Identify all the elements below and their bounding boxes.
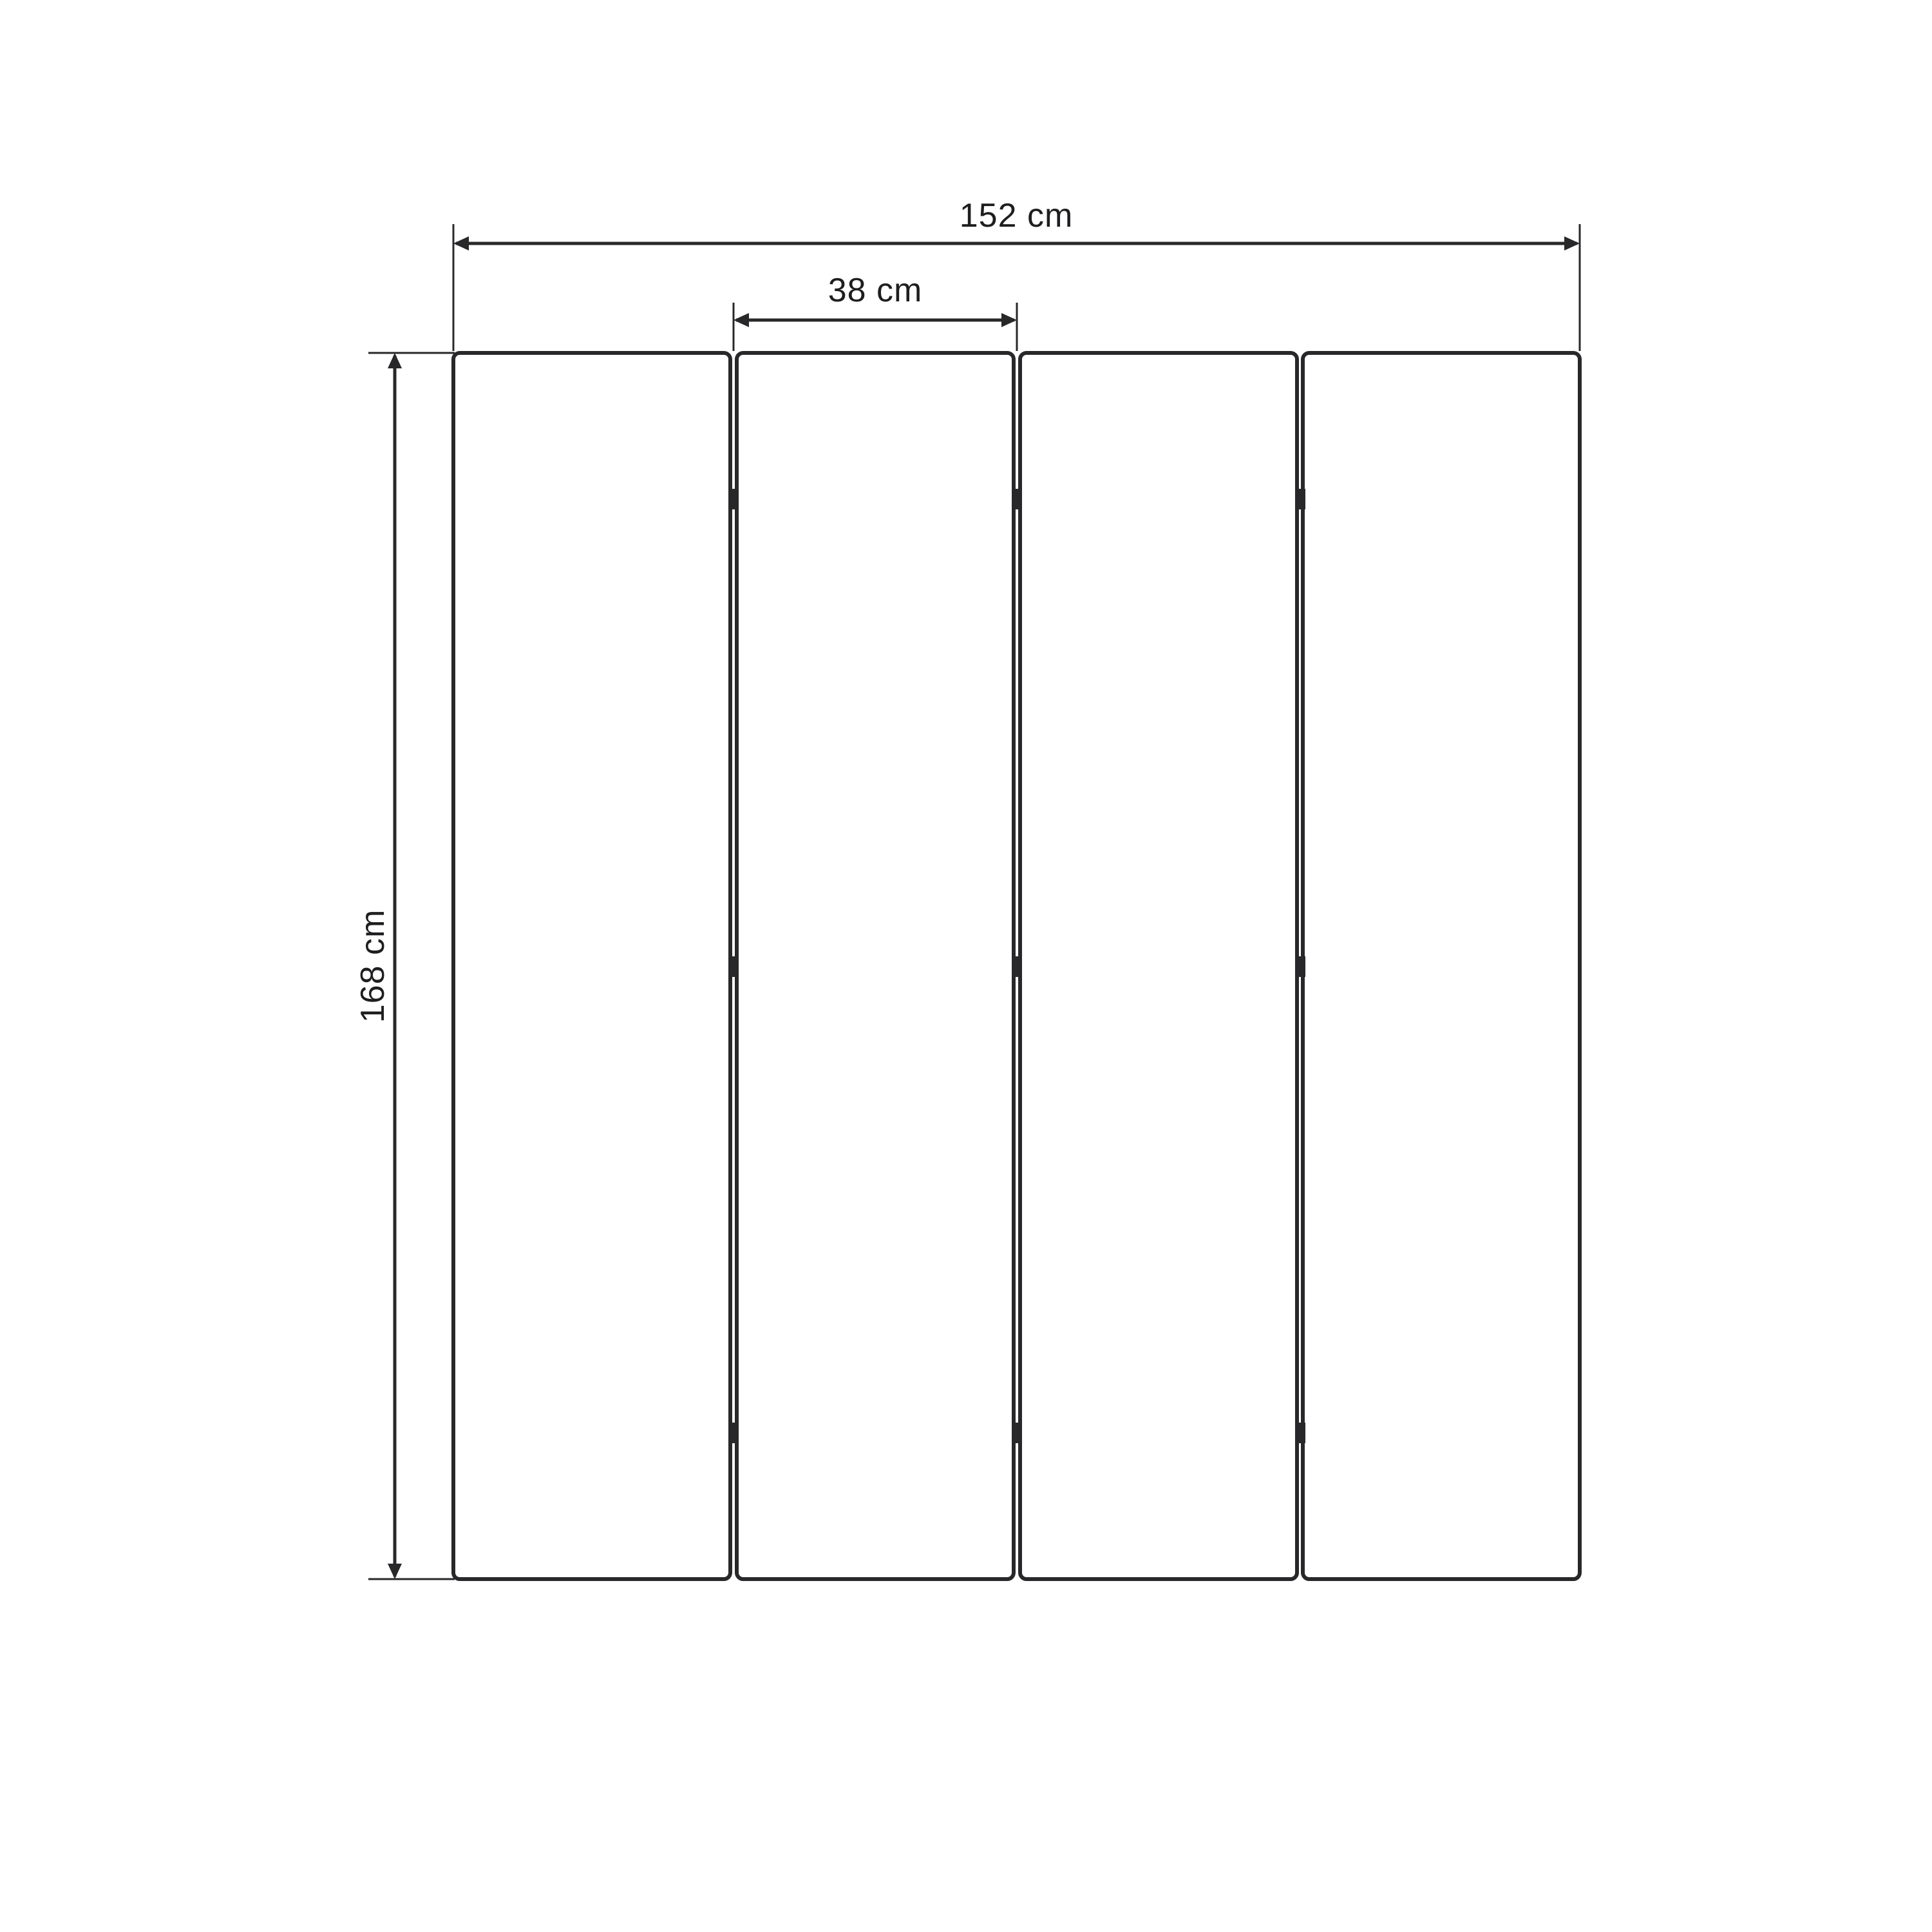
total-width-label: 152 cm xyxy=(960,197,1074,234)
hinge-icon xyxy=(728,1423,739,1443)
panel-3 xyxy=(1020,353,1297,1579)
panel-4 xyxy=(1303,353,1580,1579)
panel-2 xyxy=(737,353,1014,1579)
arrowhead-left-icon xyxy=(734,313,749,327)
dimension-diagram: 152 cm 38 cm 168 cm xyxy=(0,0,1932,1932)
arrowhead-right-icon xyxy=(1001,313,1017,327)
arrowhead-down-icon xyxy=(388,1564,402,1579)
panel-width-dimension: 38 cm xyxy=(734,272,1017,351)
height-label: 168 cm xyxy=(354,909,392,1023)
hinge-icon xyxy=(1295,489,1305,509)
panel-1 xyxy=(453,353,730,1579)
hinge-icon xyxy=(1012,956,1022,977)
arrowhead-right-icon xyxy=(1564,236,1580,251)
hinge-icon xyxy=(1012,489,1022,509)
hinge-icon xyxy=(728,956,739,977)
panel-width-label: 38 cm xyxy=(828,272,923,309)
hinge-icon xyxy=(1295,956,1305,977)
hinge-icon xyxy=(1295,1423,1305,1443)
hinge-icon xyxy=(1012,1423,1022,1443)
arrowhead-up-icon xyxy=(388,353,402,368)
arrowhead-left-icon xyxy=(453,236,469,251)
hinge-icon xyxy=(728,489,739,509)
height-dimension: 168 cm xyxy=(354,353,455,1579)
